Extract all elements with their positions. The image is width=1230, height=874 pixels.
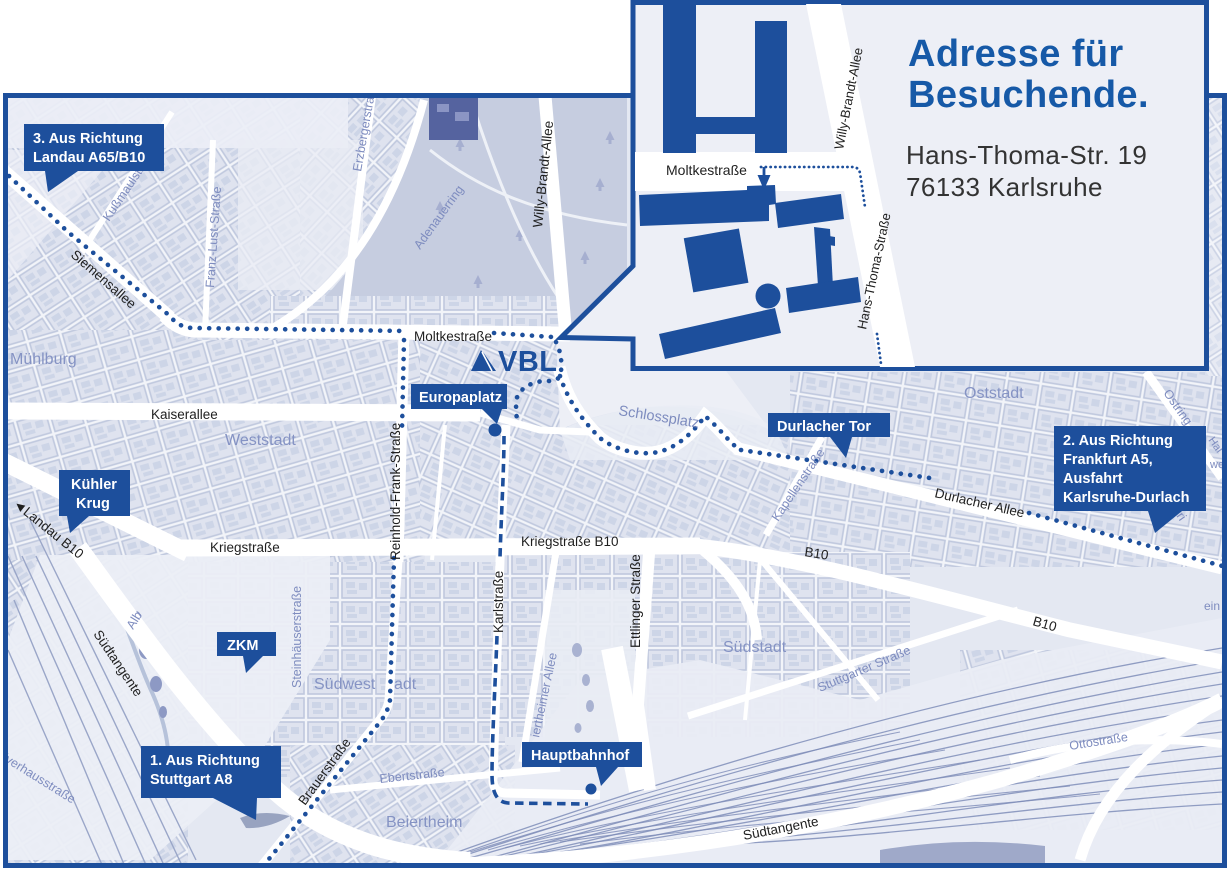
svg-text:ein: ein	[1204, 599, 1220, 613]
svg-text:Moltkestraße: Moltkestraße	[414, 329, 492, 344]
svg-text:Adresse für: Adresse für	[908, 33, 1124, 75]
svg-text:Stuttgart A8: Stuttgart A8	[150, 772, 232, 788]
svg-text:Kaiserallee: Kaiserallee	[151, 407, 218, 422]
svg-text:Reinhold-Frank-Straße: Reinhold-Frank-Straße	[388, 423, 403, 560]
svg-text:2. Aus Richtung: 2. Aus Richtung	[1063, 433, 1173, 449]
svg-text:Krug: Krug	[76, 496, 110, 512]
svg-text:Ausfahrt: Ausfahrt	[1063, 471, 1123, 487]
svg-text:Durlacher Tor: Durlacher Tor	[777, 419, 871, 435]
svg-text:Karlstraße: Karlstraße	[491, 571, 506, 633]
svg-text:Europaplatz: Europaplatz	[419, 390, 502, 406]
svg-text:Südwest: Südwest	[314, 676, 376, 693]
svg-text:we: we	[1209, 459, 1224, 471]
svg-text:Oststadt: Oststadt	[964, 385, 1024, 402]
svg-text:76133 Karlsruhe: 76133 Karlsruhe	[906, 172, 1103, 202]
svg-text:Hans-Thoma-Str. 19: Hans-Thoma-Str. 19	[906, 140, 1147, 170]
svg-text:3. Aus Richtung: 3. Aus Richtung	[33, 131, 143, 147]
svg-text:Kühler: Kühler	[71, 477, 117, 493]
svg-text:Steinhäuserstraße: Steinhäuserstraße	[290, 586, 304, 688]
svg-text:Frankfurt A5,: Frankfurt A5,	[1063, 452, 1153, 468]
svg-text:Karlsruhe-Durlach: Karlsruhe-Durlach	[1063, 490, 1190, 506]
svg-text:Kriegstraße B10: Kriegstraße B10	[521, 534, 619, 549]
svg-text:Südstadt: Südstadt	[723, 639, 787, 656]
svg-text:Hauptbahnhof: Hauptbahnhof	[531, 748, 629, 764]
svg-text:Mühlburg: Mühlburg	[10, 351, 77, 368]
svg-text:Weststadt: Weststadt	[225, 432, 296, 449]
svg-text:Besuchende.: Besuchende.	[908, 74, 1149, 116]
svg-text:Landau A65/B10: Landau A65/B10	[33, 150, 145, 166]
svg-text:adt: adt	[394, 676, 417, 693]
svg-text:ZKM: ZKM	[227, 638, 258, 654]
svg-text:VBL: VBL	[498, 346, 558, 378]
svg-text:Kriegstraße: Kriegstraße	[210, 540, 280, 555]
svg-text:Beiertheim: Beiertheim	[386, 814, 462, 831]
svg-text:1. Aus Richtung: 1. Aus Richtung	[150, 753, 260, 769]
svg-text:Moltkestraße: Moltkestraße	[666, 162, 747, 178]
svg-text:Ettlinger Straße: Ettlinger Straße	[628, 554, 643, 648]
